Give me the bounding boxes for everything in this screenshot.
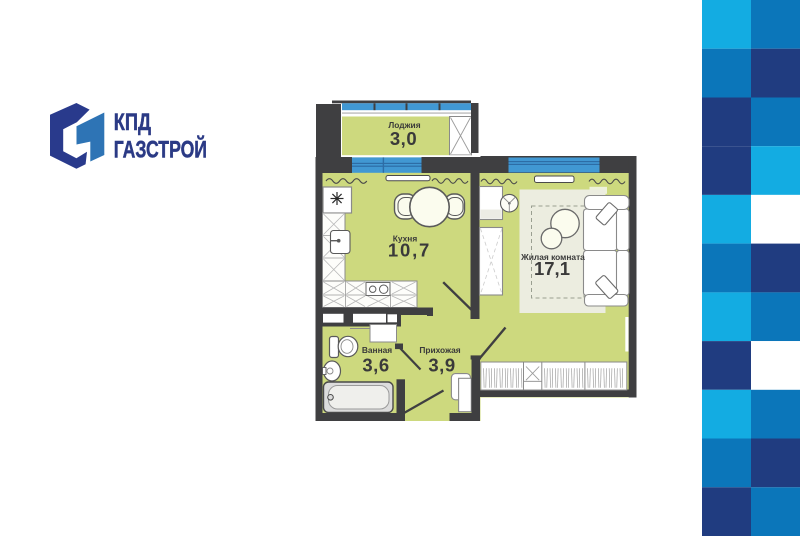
svg-text:3,6: 3,6: [362, 355, 389, 376]
svg-text:3,0: 3,0: [390, 128, 417, 149]
svg-text:ГАЗСТРОЙ: ГАЗСТРОЙ: [114, 136, 207, 163]
svg-text:Ванная: Ванная: [362, 345, 392, 355]
svg-text:Прихожая: Прихожая: [419, 345, 460, 355]
svg-text:КПД: КПД: [114, 108, 151, 136]
svg-text:17,1: 17,1: [534, 258, 570, 279]
svg-text:3,9: 3,9: [428, 355, 455, 376]
svg-text:10,7: 10,7: [388, 239, 431, 260]
